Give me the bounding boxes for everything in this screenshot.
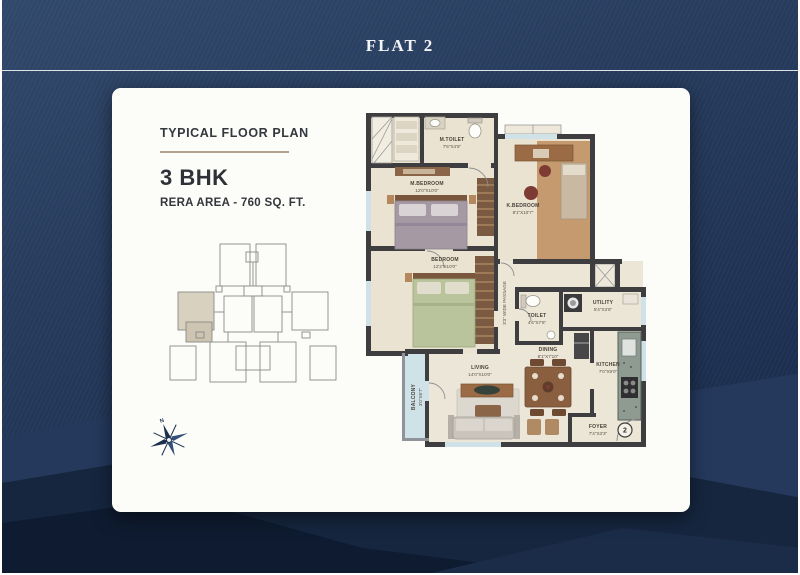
unit-type: 3 BHK: [160, 165, 309, 191]
label-toilet-dims: 4'6"X7'6": [528, 320, 547, 325]
window-ledge: [505, 125, 561, 134]
label-kbedroom-name: K.BEDROOM: [507, 203, 540, 209]
label-foyer-name: FOYER: [589, 424, 607, 430]
fridge: [574, 333, 589, 359]
heading-underline: [160, 151, 289, 153]
balcony-rail: [402, 353, 405, 441]
label-living-name: LIVING: [471, 365, 489, 371]
label-mtoilet-name: M.TOILET: [440, 137, 465, 143]
floor-plan-card: TYPICAL FLOOR PLAN 3 BHK RERA AREA - 760…: [112, 88, 690, 512]
label-living-dims: 14'0"X10'0": [468, 372, 492, 377]
info-panel: TYPICAL FLOOR PLAN 3 BHK RERA AREA - 760…: [160, 126, 309, 209]
kitchen-counter: [618, 332, 641, 420]
label-mbedroom-dims: 12'0"X10'0": [415, 188, 439, 193]
label-kbedroom-dims: 8'1"X10'7": [513, 210, 534, 215]
label-utility-name: UTILITY: [593, 300, 614, 306]
wardrobe-units: [475, 178, 494, 344]
label-mtoilet-dims: 7'6"X4'6": [443, 144, 462, 149]
label-balcony-dims: 3'0"X6'7": [418, 387, 423, 406]
unit-number-badge: 2: [618, 423, 632, 437]
balcony-rail-bottom: [403, 438, 429, 441]
slide-background: FLAT 2 TYPICAL FLOOR PLAN 3 BHK RERA ARE…: [0, 0, 800, 575]
compass-north-label: N: [159, 418, 165, 425]
page-title: FLAT 2: [2, 36, 798, 56]
title-divider: [2, 70, 798, 71]
label-utility-dims: 5'4"X3'6": [594, 307, 613, 312]
unit-number: 2: [623, 428, 627, 435]
label-bedroom-dims: 12'2"X10'0": [433, 264, 457, 269]
key-plan-diagram: [162, 238, 346, 390]
bedroom-furniture: [405, 273, 475, 347]
compass-icon: N: [146, 412, 192, 462]
label-kitchen-name: KITCHEN: [596, 362, 620, 368]
label-kitchen-dims: 7'0"X9'0": [599, 369, 618, 374]
plan-heading: TYPICAL FLOOR PLAN: [160, 126, 309, 140]
rera-area: RERA AREA - 760 SQ. FT.: [160, 197, 309, 209]
label-foyer-dims: 7'4"X3'3": [589, 431, 608, 436]
closet-shelves: [394, 117, 419, 161]
wardrobe-hatch: [372, 117, 392, 163]
label-dining-dims: 8'1"X7'10": [538, 354, 559, 359]
label-bedroom-name: BEDROOM: [431, 257, 459, 263]
label-balcony-name: BALCONY: [411, 383, 417, 410]
ac-ledge: [595, 264, 615, 287]
label-toilet-name: TOILET: [528, 313, 547, 319]
label-passage: 3'3" WIDE PASSAGE: [502, 281, 507, 325]
label-dining-name: DINING: [539, 347, 558, 353]
label-mbedroom-name: M.BEDROOM: [410, 181, 443, 187]
floor-plan-drawing: M.TOILET 7'6"X4'6" M.BEDROOM 12'0"X10'0"…: [365, 101, 677, 475]
